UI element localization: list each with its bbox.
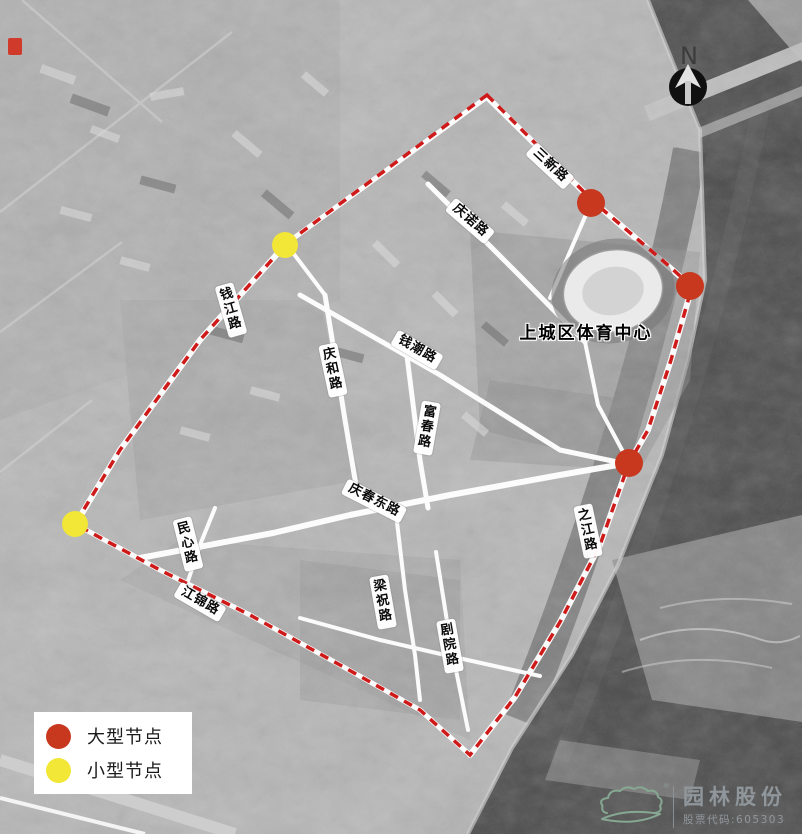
legend-label-large: 大型节点 [87,723,163,749]
legend-panel: 大型节点 小型节点 [34,712,192,794]
small-node-marker [272,232,298,258]
large-node-dot-icon [46,724,71,749]
satellite-map-graphic [0,0,802,834]
site-title: 上城区体育中心 [520,319,653,344]
logo-divider [673,786,674,828]
logo-brand-name: 园林股份 [683,786,787,809]
large-node-marker [577,189,605,217]
map-canvas: N 三新路 庆诺路 钱江路 钱潮路 庆和路 富春路 庆春东路 之江路 民心路 江… [0,0,802,834]
company-logo: ® 园林股份 股票代码:605303 [598,779,802,834]
large-node-marker [676,272,704,300]
cloud-logo-icon: ® [598,784,664,830]
registered-mark: ® [663,782,670,790]
small-node-marker [62,511,88,537]
large-node-marker [615,449,643,477]
watermark-badge [8,38,22,55]
legend-row-small: 小型节点 [34,757,192,783]
north-label: N [676,42,702,70]
legend-row-large: 大型节点 [34,723,192,749]
legend-label-small: 小型节点 [87,757,163,783]
logo-stock-code: 股票代码:605303 [683,812,787,827]
small-node-dot-icon [46,758,71,783]
